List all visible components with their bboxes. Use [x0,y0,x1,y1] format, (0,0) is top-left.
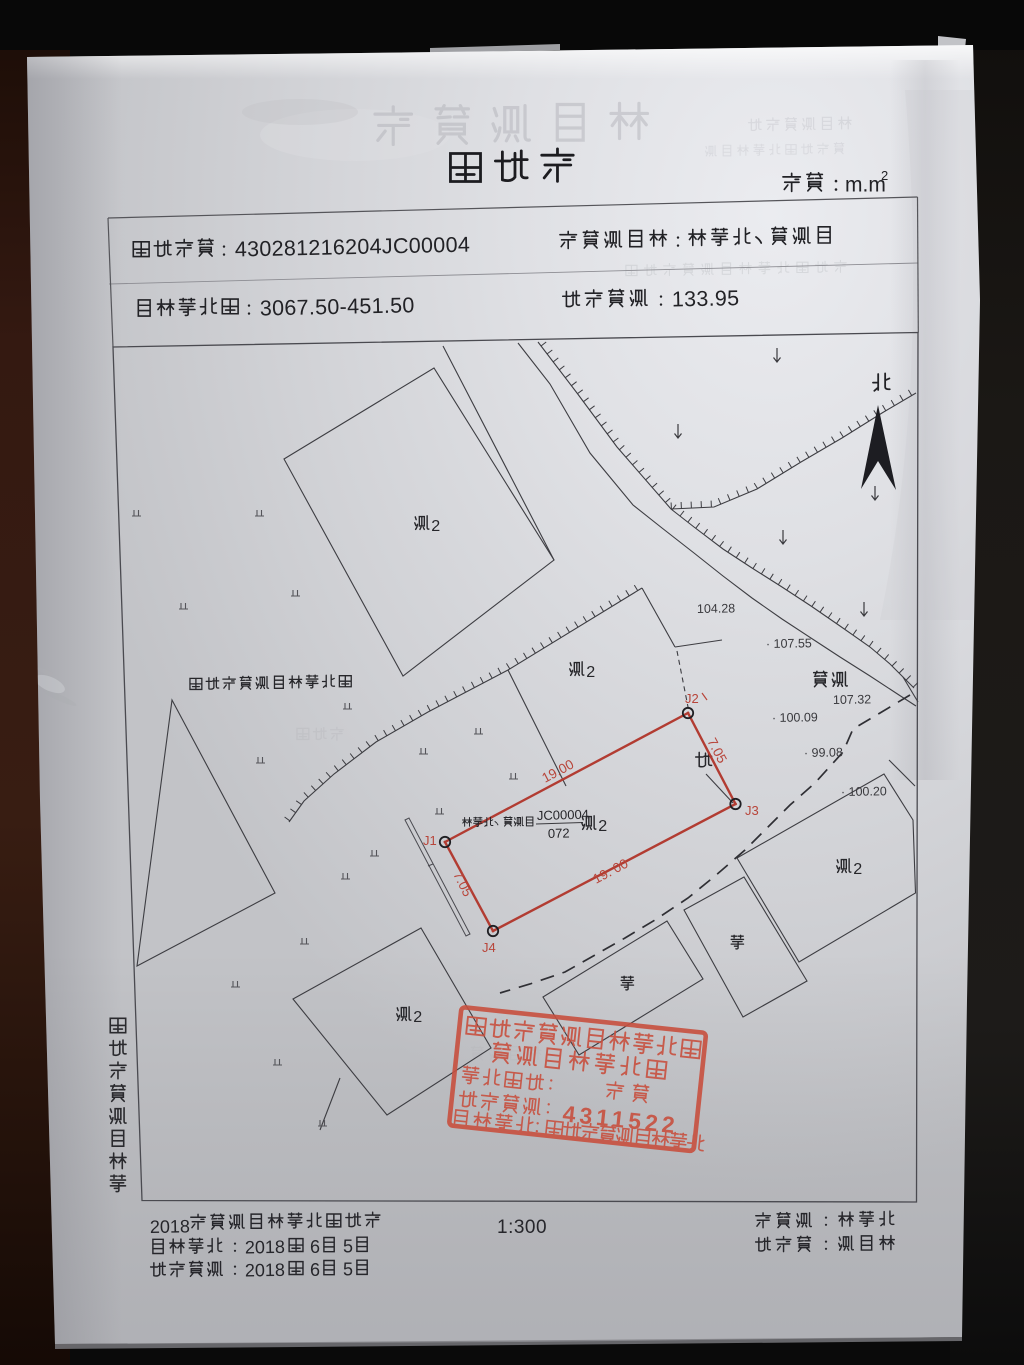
svg-text:1:300: 1:300 [497,1217,547,1238]
svg-text:J4: J4 [482,940,496,955]
svg-text:2: 2 [853,860,862,878]
svg-text:· 99.08: · 99.08 [804,745,843,760]
svg-text:2018: 2018 [245,1260,285,1281]
svg-text:6: 6 [310,1260,320,1280]
svg-text:5: 5 [343,1260,353,1280]
svg-text:m.m: m.m [845,174,886,197]
svg-text:2: 2 [586,663,595,681]
svg-text:· 100.20: · 100.20 [841,784,887,799]
svg-text:2: 2 [413,1008,422,1026]
svg-text:430281216204JC00004: 430281216204JC00004 [235,233,471,262]
svg-text:2: 2 [598,817,607,835]
svg-text:133.95: 133.95 [672,286,740,311]
svg-text:J3: J3 [745,803,759,818]
svg-text:2018: 2018 [245,1237,285,1258]
svg-text:107.32: 107.32 [833,692,872,707]
svg-text:J1: J1 [423,833,437,848]
svg-text:JC00004: JC00004 [537,807,589,823]
svg-text:2: 2 [881,168,888,183]
svg-text:J2: J2 [685,691,699,706]
svg-text:· 100.09: · 100.09 [772,710,818,725]
svg-text:6: 6 [310,1237,320,1257]
svg-text:104.28: 104.28 [697,601,736,616]
svg-text:072: 072 [548,825,570,841]
svg-text:· 107.55: · 107.55 [766,636,812,651]
svg-text:2018: 2018 [150,1216,190,1237]
svg-text:2: 2 [431,517,440,535]
svg-text:5: 5 [343,1237,353,1257]
svg-text:3067.50-451.50: 3067.50-451.50 [260,293,415,320]
